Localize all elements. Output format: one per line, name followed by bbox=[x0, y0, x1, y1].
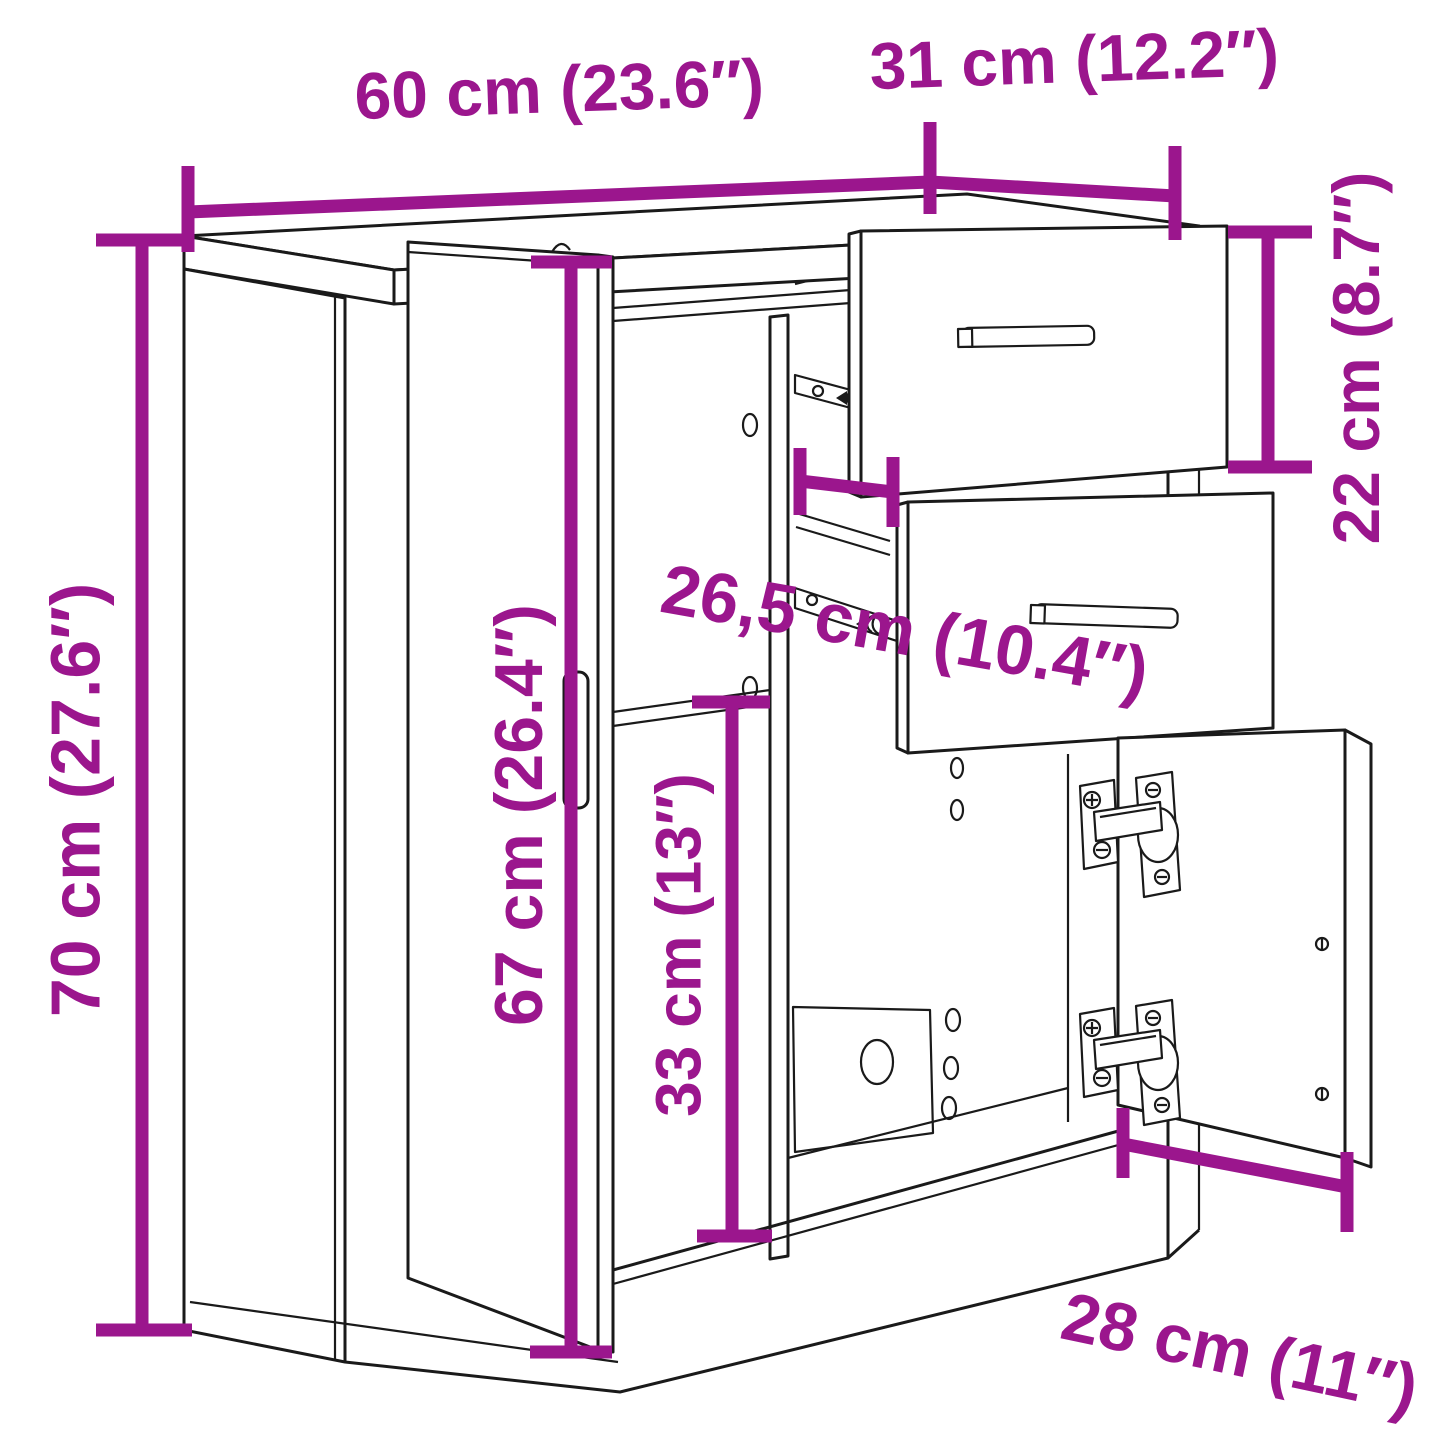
dimension-drawer-height-label: 22 cm (8.7″) bbox=[1319, 172, 1393, 545]
drawer-top-front bbox=[861, 226, 1227, 497]
dimension-door-width-label: 28 cm (11″) bbox=[1055, 1278, 1424, 1427]
support-panel bbox=[793, 1007, 933, 1152]
dimension-height-label: 70 cm (27.6″) bbox=[37, 583, 115, 1017]
dimension-width-label: 60 cm (23.6″) bbox=[353, 45, 765, 133]
center-divider bbox=[770, 315, 788, 1259]
left-door-edge bbox=[598, 255, 613, 1352]
shelf-pin-hole bbox=[946, 1009, 960, 1031]
dimension-door-height-label: 67 cm (26.4″) bbox=[481, 604, 557, 1026]
shelf-pin-hole bbox=[951, 800, 963, 820]
dimension-diagram: 60 cm (23.6″) 31 cm (12.2″) 70 cm (27.6″… bbox=[0, 0, 1445, 1445]
rail-edge-2 bbox=[796, 527, 890, 555]
drawer-top bbox=[849, 226, 1227, 497]
dimension-drawer-height: 22 cm (8.7″) bbox=[1228, 172, 1393, 545]
sideboard-line-drawing: 60 cm (23.6″) 31 cm (12.2″) 70 cm (27.6″… bbox=[0, 0, 1445, 1445]
left-side-panel bbox=[184, 269, 345, 1362]
right-door bbox=[1080, 730, 1371, 1167]
drawer-top-side-edge bbox=[849, 231, 861, 497]
right-door-edge bbox=[1345, 730, 1371, 1167]
drawer-handle bbox=[958, 326, 1094, 347]
shelf-pin-hole bbox=[951, 758, 963, 778]
shelf-pin-hole bbox=[743, 414, 757, 436]
bottom-front-edge bbox=[613, 1130, 1122, 1270]
shelf-pin-hole bbox=[944, 1057, 958, 1079]
dimension-depth-label: 31 cm (12.2″) bbox=[868, 15, 1280, 103]
bottom-front-edge-2 bbox=[613, 1144, 1122, 1284]
dimension-compartment-height-label: 33 cm (13″) bbox=[642, 773, 714, 1117]
dimension-compartment-height: 33 cm (13″) bbox=[642, 702, 772, 1236]
rail-edge bbox=[796, 513, 890, 541]
dimension-height: 70 cm (27.6″) bbox=[37, 240, 193, 1330]
